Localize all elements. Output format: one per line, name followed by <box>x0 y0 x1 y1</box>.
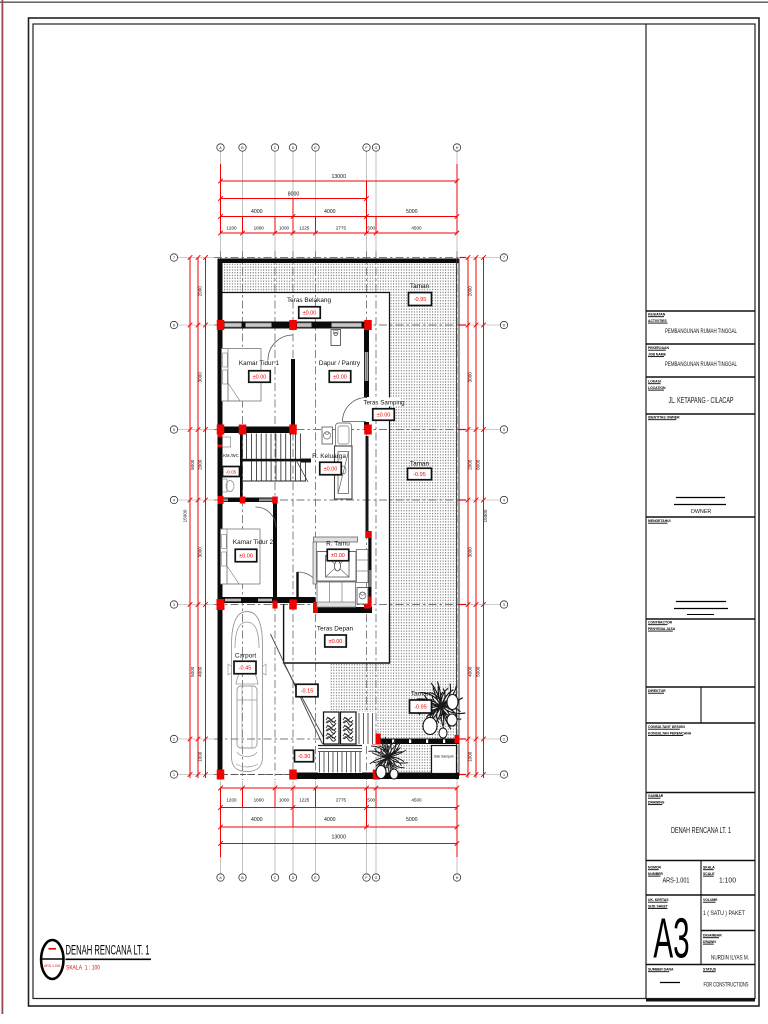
svg-text:SCALE: SCALE <box>703 872 715 876</box>
svg-text:4: 4 <box>173 498 175 502</box>
svg-text:C: C <box>274 146 277 150</box>
svg-text:GAMBAR: GAMBAR <box>648 794 664 798</box>
svg-text:G: G <box>375 876 378 880</box>
svg-text:NURDIN ILYAS M.: NURDIN ILYAS M. <box>711 956 749 962</box>
svg-text:5: 5 <box>173 428 175 432</box>
svg-text:DIREKTUR: DIREKTUR <box>648 689 666 693</box>
svg-text:±0.00: ±0.00 <box>253 374 267 380</box>
svg-text:5: 5 <box>503 428 505 432</box>
svg-text:FOR CONSTRUCTIONS: FOR CONSTRUCTIONS <box>704 983 749 989</box>
svg-text:1: 1 <box>173 773 175 777</box>
svg-text:1225: 1225 <box>299 798 310 803</box>
svg-text:5000: 5000 <box>190 666 195 677</box>
svg-text:ARS-1.001: ARS-1.001 <box>663 878 690 885</box>
svg-text:6: 6 <box>503 323 505 327</box>
svg-text:-0.15: -0.15 <box>301 688 314 694</box>
svg-text:JL. KETAPANG - CILACAP: JL. KETAPANG - CILACAP <box>669 396 734 405</box>
svg-text:±0.00: ±0.00 <box>331 553 345 559</box>
svg-text:JOB NAME: JOB NAME <box>648 352 667 356</box>
svg-text:-0.30: -0.30 <box>298 754 311 760</box>
svg-text:H: H <box>456 146 459 150</box>
svg-text:1000: 1000 <box>279 226 290 231</box>
svg-text:3000: 3000 <box>198 372 203 383</box>
svg-text:-0.95: -0.95 <box>414 704 427 710</box>
svg-text:NUMBER: NUMBER <box>648 872 663 876</box>
svg-text:LOKASI: LOKASI <box>648 380 661 384</box>
svg-text:H: H <box>456 876 459 880</box>
svg-text:13000: 13000 <box>332 174 347 180</box>
svg-text:2: 2 <box>173 737 175 741</box>
svg-text:1: 1 <box>503 773 505 777</box>
svg-text:3000: 3000 <box>198 547 203 558</box>
svg-text:-0.95: -0.95 <box>413 472 426 478</box>
svg-text:±0.00: ±0.00 <box>239 553 253 559</box>
svg-text:D: D <box>292 146 295 150</box>
svg-text:±0.00: ±0.00 <box>333 374 347 380</box>
svg-text:3: 3 <box>173 603 175 607</box>
svg-text:OWNER: OWNER <box>691 509 712 515</box>
svg-text:PEMBANGUNAN RUMAH TINGGAL: PEMBANGUNAN RUMAH TINGGAL <box>665 328 737 335</box>
svg-text:4: 4 <box>503 498 505 502</box>
svg-text:DENAH RENCANA LT. 1: DENAH RENCANA LT. 1 <box>671 826 731 835</box>
svg-text:C: C <box>274 876 277 880</box>
svg-text:Taman: Taman <box>411 691 431 698</box>
svg-text:1000: 1000 <box>279 798 290 803</box>
svg-text:R. Keluarga: R. Keluarga <box>312 453 346 460</box>
svg-text:DIGAMBAR: DIGAMBAR <box>703 934 722 938</box>
svg-text:7: 7 <box>173 256 175 260</box>
svg-text:15000: 15000 <box>483 509 488 522</box>
svg-text:A3: A3 <box>653 906 689 970</box>
svg-text:4500: 4500 <box>411 798 422 803</box>
svg-text:4000: 4000 <box>251 817 263 823</box>
svg-text:500: 500 <box>367 226 375 231</box>
svg-text:1225: 1225 <box>299 226 310 231</box>
svg-text:SUMBER DANA: SUMBER DANA <box>648 968 674 972</box>
svg-text:-0.05: -0.05 <box>226 469 237 474</box>
svg-text:5000: 5000 <box>406 817 418 823</box>
svg-text:CONTRACTOR: CONTRACTOR <box>648 621 673 625</box>
svg-text:7: 7 <box>503 256 505 260</box>
svg-text:CONSULTANT DESIGN: CONSULTANT DESIGN <box>648 725 685 729</box>
svg-text:±0.00: ±0.00 <box>324 466 338 472</box>
svg-text:Teras Depan: Teras Depan <box>317 626 354 633</box>
svg-text:5000: 5000 <box>476 666 481 677</box>
svg-text:8000: 8000 <box>190 459 195 470</box>
svg-text:±0.00: ±0.00 <box>329 639 343 645</box>
svg-text:LOCATION: LOCATION <box>648 386 666 390</box>
svg-text:2775: 2775 <box>336 226 347 231</box>
svg-text:Teras Belakang: Teras Belakang <box>287 297 331 304</box>
svg-text:5000: 5000 <box>406 209 418 215</box>
svg-text:D: D <box>292 876 295 880</box>
svg-text:1000: 1000 <box>468 751 473 762</box>
svg-text:15000: 15000 <box>183 509 188 522</box>
svg-text:Carport: Carport <box>235 653 257 660</box>
svg-text:3000: 3000 <box>468 547 473 558</box>
svg-text:-0.45: -0.45 <box>239 665 252 671</box>
svg-text:SKALA 1 : 100: SKALA 1 : 100 <box>66 965 100 972</box>
svg-text:PEMBANGUNAN RUMAH TINGGAL: PEMBANGUNAN RUMAH TINGGAL <box>665 361 737 368</box>
svg-text:1:100: 1:100 <box>719 878 736 885</box>
svg-text:KONSULTAN PERENCANA: KONSULTAN PERENCANA <box>648 731 692 735</box>
svg-text:2000: 2000 <box>198 459 203 470</box>
svg-text:6: 6 <box>173 323 175 327</box>
svg-text:Kamar Tidur 1: Kamar Tidur 1 <box>239 360 280 367</box>
svg-text:2000: 2000 <box>198 286 203 297</box>
svg-text:DRAWN: DRAWN <box>703 940 716 944</box>
svg-text:4500: 4500 <box>411 226 422 231</box>
svg-text:ACTIVITIES: ACTIVITIES <box>648 319 667 323</box>
svg-text:1000: 1000 <box>198 751 203 762</box>
svg-text:Taman: Taman <box>410 461 430 468</box>
svg-text:R. Tamu: R. Tamu <box>326 541 350 548</box>
svg-text:1200: 1200 <box>226 798 237 803</box>
svg-text:-0.95: -0.95 <box>414 297 427 303</box>
svg-text:±0.00: ±0.00 <box>377 412 391 418</box>
svg-text:8000: 8000 <box>476 459 481 470</box>
svg-text:4000: 4000 <box>468 666 473 677</box>
svg-text:Dapur / Pantry: Dapur / Pantry <box>319 360 361 367</box>
svg-text:G: G <box>375 146 378 150</box>
svg-text:1 ( SATU ) PAKET: 1 ( SATU ) PAKET <box>703 911 745 917</box>
svg-text:2775: 2775 <box>336 798 347 803</box>
svg-text:Bak Sampah: Bak Sampah <box>434 755 454 759</box>
svg-text:4000: 4000 <box>324 209 336 215</box>
svg-text:Taman: Taman <box>410 283 430 290</box>
svg-text:4000: 4000 <box>198 666 203 677</box>
svg-text:1800: 1800 <box>254 226 265 231</box>
svg-text:3000: 3000 <box>468 372 473 383</box>
svg-text:KM./WC: KM./WC <box>223 453 239 458</box>
svg-text:UK. KERTAS: UK. KERTAS <box>648 898 669 902</box>
svg-text:2000: 2000 <box>468 459 473 470</box>
svg-text:DENAH RENCANA LT. 1: DENAH RENCANA LT. 1 <box>66 943 150 958</box>
svg-text:2: 2 <box>503 737 505 741</box>
svg-text:IDENTITAS OWNER: IDENTITAS OWNER <box>648 416 680 420</box>
svg-text:NOMOR: NOMOR <box>648 866 662 870</box>
svg-text:Kamar Tidur 2: Kamar Tidur 2 <box>233 539 274 546</box>
svg-text:VOLUME: VOLUME <box>703 898 718 902</box>
svg-text:1200: 1200 <box>226 226 237 231</box>
svg-text:STATUS: STATUS <box>703 968 717 972</box>
svg-text:8000: 8000 <box>288 192 300 198</box>
svg-text:1800: 1800 <box>254 798 265 803</box>
svg-text:SKALA: SKALA <box>703 866 715 870</box>
svg-text:MENGETAHUI: MENGETAHUI <box>648 519 671 523</box>
svg-text:4000: 4000 <box>324 817 336 823</box>
svg-text:PENYEDIA JASA: PENYEDIA JASA <box>648 627 676 631</box>
svg-text:2000: 2000 <box>468 286 473 297</box>
svg-text:3: 3 <box>503 603 505 607</box>
svg-text:Teras Samping: Teras Samping <box>363 400 405 407</box>
svg-text:ARS-1.001: ARS-1.001 <box>44 964 61 968</box>
svg-text:4000: 4000 <box>251 209 263 215</box>
svg-text:13000: 13000 <box>332 835 347 841</box>
svg-text:DRAWING: DRAWING <box>648 800 665 804</box>
svg-text:PEKERJAAN: PEKERJAAN <box>648 346 669 350</box>
svg-text:500: 500 <box>367 798 375 803</box>
svg-text:±0.00: ±0.00 <box>303 310 317 316</box>
svg-text:KEGIATAN: KEGIATAN <box>648 313 666 317</box>
